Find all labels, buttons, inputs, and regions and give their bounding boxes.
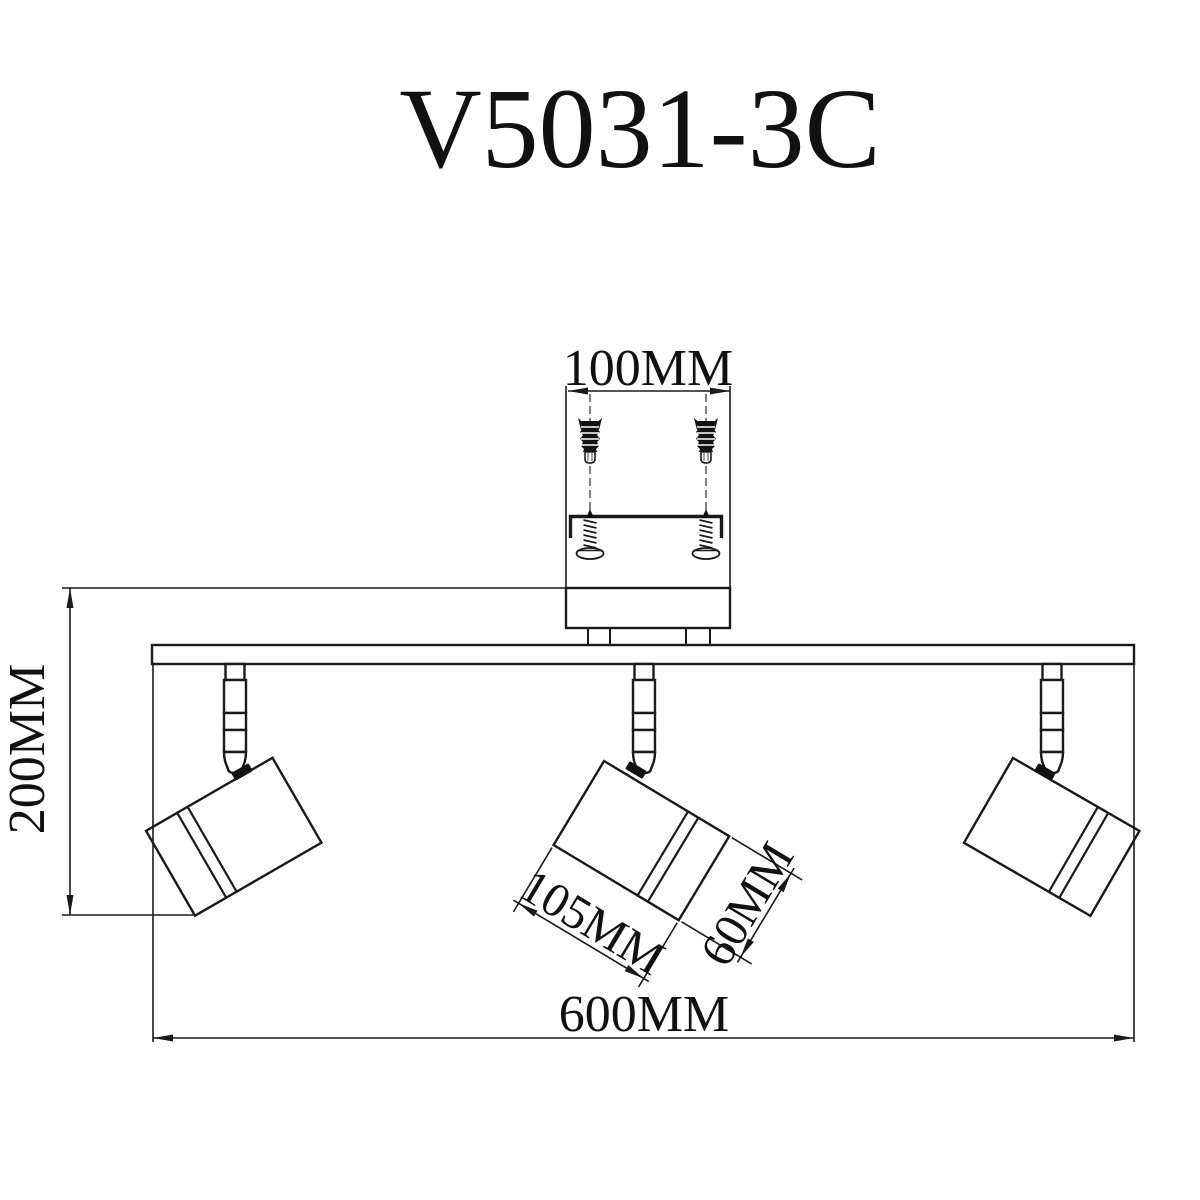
dim-bar-width-label: 600MM: [559, 986, 729, 1043]
swivel-stem-left: [224, 664, 246, 773]
swivel-stem-center: [633, 664, 655, 773]
anchor-neck: [585, 452, 595, 463]
anchor-body: [580, 421, 600, 452]
dim-hole-spacing-label: 100MM: [563, 340, 733, 397]
dim-fixture-height-label: 200MM: [0, 664, 56, 834]
light-fixture-diagram: V5031-3C 100MM: [0, 0, 1200, 1200]
page-title: V5031-3C: [399, 65, 880, 192]
screw-head: [577, 548, 604, 559]
ceiling-track-bar: [152, 645, 1134, 664]
screw-head: [693, 548, 720, 559]
anchor-neck: [701, 452, 711, 463]
anchor-body: [696, 421, 716, 452]
swivel-stem-right: [1041, 664, 1063, 773]
canopy: [566, 588, 730, 628]
technical-drawing-page: V5031-3C 100MM: [0, 0, 1200, 1200]
